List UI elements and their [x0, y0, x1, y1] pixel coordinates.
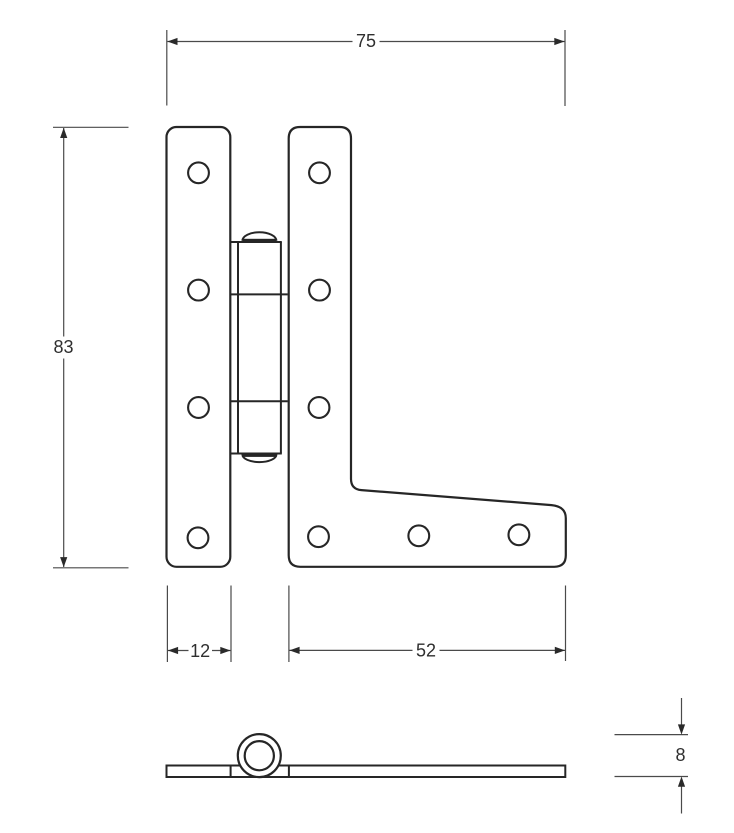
- svg-text:75: 75: [356, 31, 376, 51]
- svg-text:52: 52: [416, 640, 436, 660]
- svg-text:12: 12: [190, 641, 210, 661]
- svg-text:8: 8: [675, 745, 685, 765]
- svg-text:83: 83: [53, 337, 73, 357]
